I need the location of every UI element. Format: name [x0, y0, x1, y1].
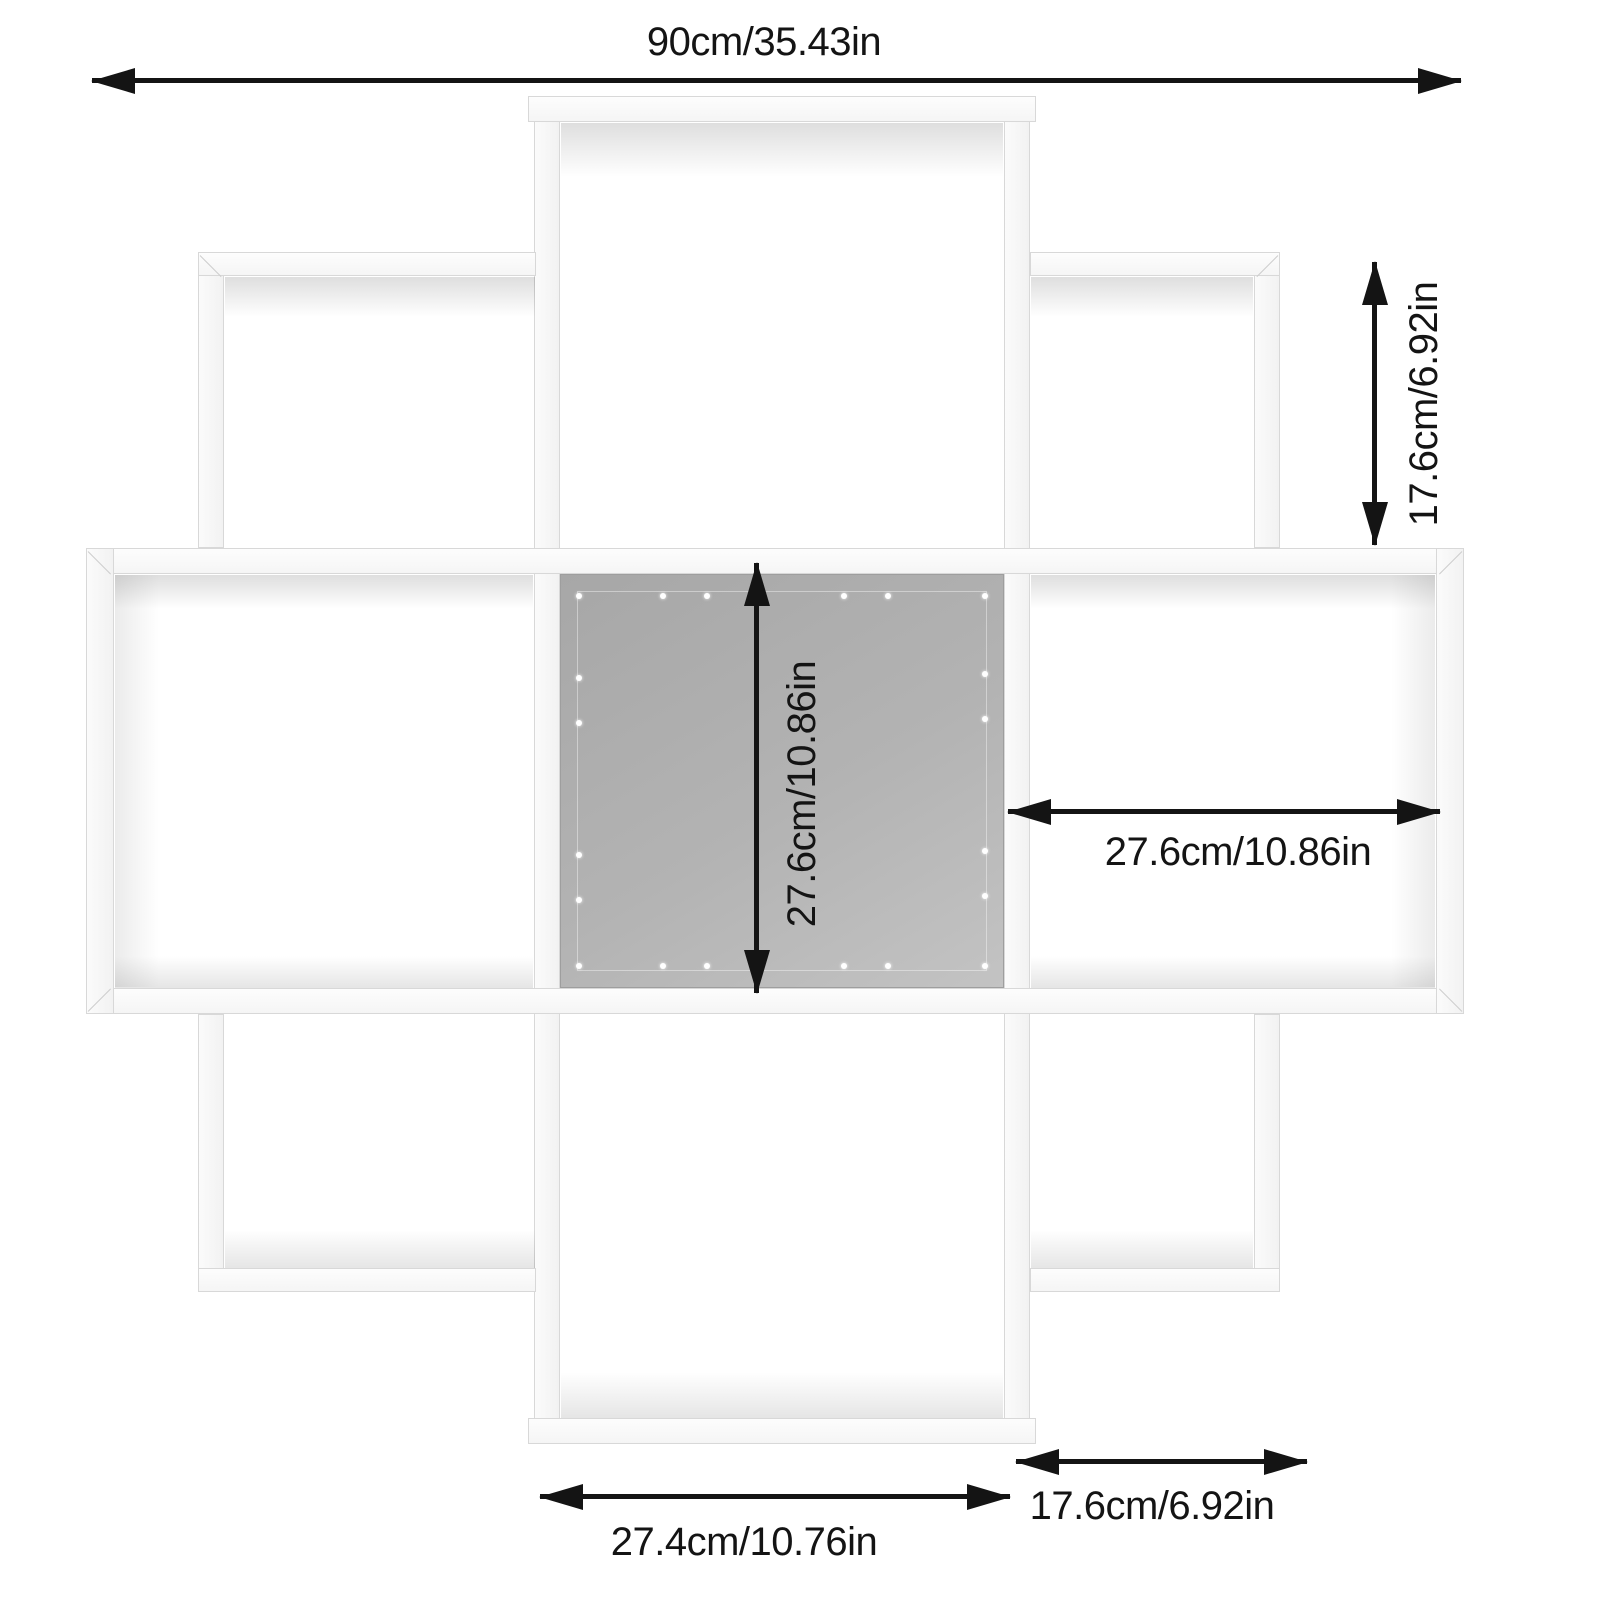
corner-cube-width-arrow — [1016, 1459, 1307, 1464]
screw-hole — [576, 852, 582, 858]
overall-width-label: 90cm/35.43in — [647, 22, 881, 62]
overall-width-arrow — [92, 78, 1461, 83]
shade-left-mid-wall — [115, 575, 159, 987]
shade-upper-left-ceiling — [225, 277, 535, 317]
shade-bottom-cube-floor — [561, 1372, 1003, 1418]
upper-right-wall — [1254, 252, 1280, 548]
lower-right-wall — [1254, 1014, 1280, 1292]
screw-hole — [982, 716, 988, 722]
shelf-dimension-diagram: 90cm/35.43in 17.6cm/6.92in 27.6cm/10.86i… — [0, 0, 1600, 1600]
center-cube-height-arrow — [754, 563, 759, 993]
screw-hole — [576, 675, 582, 681]
screw-hole — [704, 963, 710, 969]
shade-lower-left-floor — [225, 1230, 535, 1268]
shade-top-cube-ceiling — [561, 123, 1003, 177]
screw-hole — [982, 671, 988, 677]
screw-hole — [885, 963, 891, 969]
center-bottom-panel — [528, 1418, 1036, 1444]
middle-cap-left — [86, 548, 114, 1014]
screw-hole — [576, 720, 582, 726]
screw-hole — [704, 593, 710, 599]
screw-hole — [576, 963, 582, 969]
corner-cube-height-label: 17.6cm/6.92in — [1404, 282, 1444, 527]
lower-right-bottom-panel — [1030, 1268, 1280, 1292]
screw-hole — [660, 593, 666, 599]
middle-right-cube-width-label: 27.6cm/10.86in — [1105, 832, 1372, 872]
center-top-panel — [528, 96, 1036, 122]
screw-hole — [982, 963, 988, 969]
shade-left-mid-floor — [115, 956, 533, 988]
screw-hole — [982, 593, 988, 599]
corner-cube-width-label: 17.6cm/6.92in — [1030, 1486, 1275, 1526]
center-cube-height-label: 27.6cm/10.86in — [782, 661, 822, 928]
bottom-cube-width-arrow — [540, 1494, 1010, 1499]
screw-hole — [982, 848, 988, 854]
middle-cap-right — [1436, 548, 1464, 1014]
middle-shelf-top — [86, 548, 1464, 574]
lower-left-wall — [198, 1014, 224, 1292]
shade-lower-right-floor — [1031, 1230, 1253, 1268]
shade-right-mid-ceiling — [1031, 575, 1435, 609]
screw-hole — [576, 593, 582, 599]
corner-cube-height-arrow — [1372, 262, 1377, 545]
screw-hole — [576, 897, 582, 903]
screw-hole — [841, 963, 847, 969]
shade-right-mid-wall — [1391, 575, 1435, 987]
screw-hole — [660, 963, 666, 969]
shade-upper-right-ceiling — [1031, 277, 1253, 317]
middle-shelf-bottom — [86, 988, 1464, 1014]
bottom-cube-width-label: 27.4cm/10.76in — [611, 1522, 878, 1562]
shade-left-mid-ceiling — [115, 575, 533, 609]
lower-left-bottom-panel — [198, 1268, 536, 1292]
screw-hole — [885, 593, 891, 599]
screw-hole — [982, 893, 988, 899]
shade-right-mid-floor — [1031, 956, 1435, 988]
center-wall-right — [1004, 120, 1030, 1420]
upper-left-top-panel — [198, 252, 536, 276]
upper-left-wall — [198, 252, 224, 548]
screw-hole — [841, 593, 847, 599]
upper-right-top-panel — [1030, 252, 1280, 276]
middle-right-cube-width-arrow — [1008, 809, 1440, 814]
center-wall-left — [534, 120, 560, 1420]
